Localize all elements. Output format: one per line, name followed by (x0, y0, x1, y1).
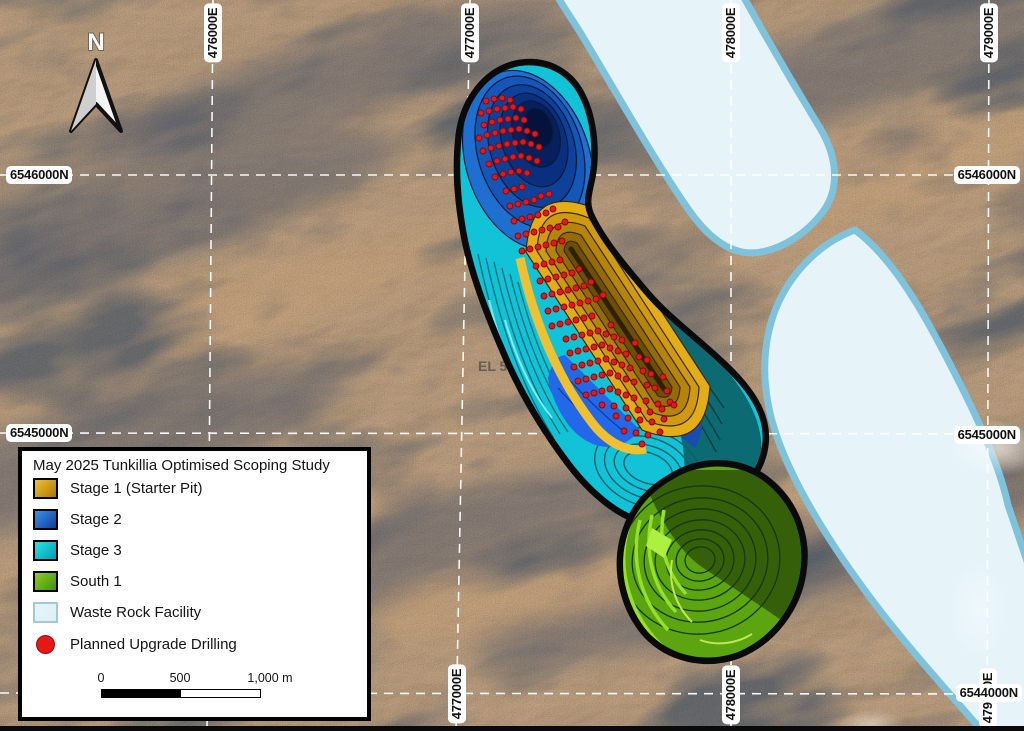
scalebar-label-0: 0 (98, 671, 105, 685)
legend-item-waste-rock: Waste Rock Facility (33, 599, 201, 625)
legend-item-south1: South 1 (33, 568, 122, 594)
easting-label-bottom-477000e: 477000E (448, 665, 466, 724)
legend-item-stage3: Stage 3 (33, 537, 122, 563)
stage3-swatch (33, 540, 58, 561)
northing-label-left-6545000n: 6545000N (6, 424, 72, 442)
legend-item-label: Waste Rock Facility (70, 604, 201, 621)
waste-rock-swatch (33, 602, 58, 623)
legend-item-stage1: Stage 1 (Starter Pit) (33, 475, 203, 501)
legend-item-label: Stage 1 (Starter Pit) (70, 480, 203, 497)
drilling-dot-symbol (36, 635, 55, 654)
scale-bar (101, 689, 261, 698)
easting-label-top-476000e: 476000E (204, 4, 222, 63)
easting-label-top-478000e: 478000E (722, 4, 740, 63)
scalebar-label-500: 500 (170, 671, 191, 685)
north-arrow: N (68, 28, 128, 140)
easting-label-bottom-478000e: 478000E (722, 666, 740, 725)
map-bottom-border (0, 726, 1024, 731)
legend-item-label: Stage 3 (70, 542, 122, 559)
legend-item-label: Stage 2 (70, 511, 122, 528)
northing-label-left-6546000n: 6546000N (6, 166, 72, 184)
legend-panel: May 2025 Tunkillia Optimised Scoping Stu… (18, 447, 371, 721)
map-figure: EL 590 (0, 0, 1024, 731)
legend-title: May 2025 Tunkillia Optimised Scoping Stu… (33, 457, 330, 474)
easting-label-top-479000e: 479000E (980, 4, 998, 63)
north-arrow-label: N (87, 29, 104, 56)
stage1-swatch (33, 478, 58, 499)
easting-label-top-477000e: 477000E (461, 4, 479, 63)
northing-label-right-6545000n: 6545000N (954, 426, 1020, 444)
stage2-swatch (33, 509, 58, 530)
south1-swatch (33, 571, 58, 592)
northing-label-right-6544000n: 6544000N (956, 684, 1022, 702)
scalebar-label-1000: 1,000 m (247, 671, 292, 685)
legend-item-label: Planned Upgrade Drilling (70, 636, 237, 653)
legend-item-label: South 1 (70, 573, 122, 590)
northing-label-right-6546000n: 6546000N (954, 166, 1020, 184)
legend-item-stage2: Stage 2 (33, 506, 122, 532)
legend-item-drilling: Planned Upgrade Drilling (33, 631, 237, 657)
